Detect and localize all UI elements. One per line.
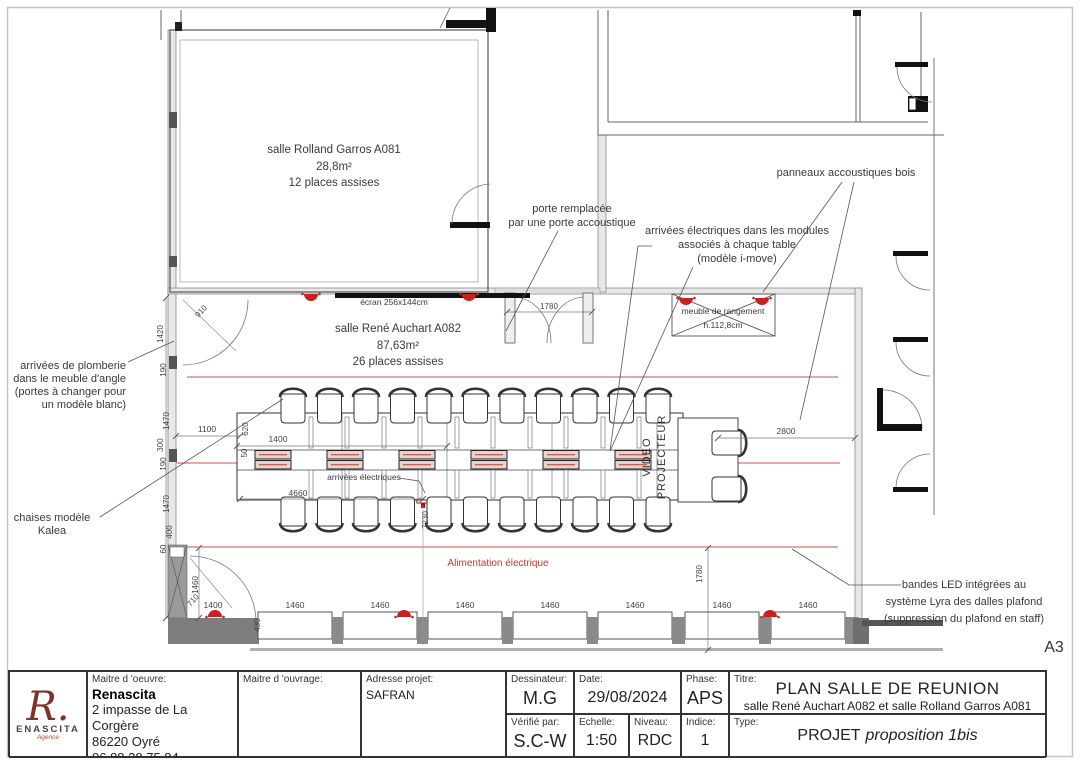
wall-bay [598,612,672,639]
ann-meuble-2: h.112,8cm [703,320,742,330]
dim-4660: 4660 [289,488,308,498]
corridor-door-5 [893,454,930,492]
verifie-cell: Vérifié par: S.C-W [506,714,574,758]
marker-dot [301,293,304,296]
table-leg [528,470,532,498]
room2-seats: 26 places assises [353,356,444,368]
indice-cell: Indice: 1 [681,714,729,758]
dim-430: 430 [253,618,262,632]
wall-bay [428,612,502,639]
ann-panneaux: panneaux accoustiques bois [777,167,916,179]
logo: R. ENASCITA Agence [9,671,87,758]
logo-subtitle: Agence [37,734,59,741]
ann-alim: Alimentation électrique [447,558,549,569]
door-sensor-marker [462,294,476,301]
table-leg [418,470,422,498]
chair [463,497,489,531]
adresse-projet-label: Adresse projet: [366,674,501,685]
wall-pillar [502,617,513,644]
sheet-border [8,8,1073,757]
chair-seat [500,497,524,526]
wall-pillar [672,617,685,644]
wall-hatch [169,449,177,462]
type-label: Type: [734,717,758,728]
chair [645,497,671,531]
room1-top-door [440,8,496,32]
dim-1780-vert: 1780 [695,565,704,583]
drawing-sheet: 910 1420 190 1470 300 190 1470 400 60 14… [0,0,1080,764]
ann-plomberie-3: (portes à changer pour [15,386,127,398]
dessinateur-value: M.G [511,685,569,711]
wall-bay [258,612,332,639]
adresse-projet-cell: Adresse projet: SAFRAN [361,671,506,758]
dim-bottom-1460-1: 1460 [286,600,305,610]
dim-left-60: 60 [159,544,168,553]
room-labels: salle Rolland Garros A081 28,8m² 12 plac… [267,144,461,368]
door-sensor-marker [763,610,777,617]
chair-seat [610,497,634,526]
chair [463,389,489,423]
chair-seat [354,394,378,423]
wall-bay [685,612,759,639]
chair [572,389,598,423]
ann-meuble-1: meuble de rangement [682,306,765,316]
dim-1400-table: 1400 [269,434,288,444]
marker-dot [769,297,772,300]
table-leg [309,470,313,498]
dim-bottom-1460-3: 1460 [456,600,475,610]
table-leg [309,417,313,448]
dim-left-1470b: 1470 [162,495,171,513]
niveau-value: RDC [634,728,676,754]
chair-seat [318,497,342,526]
dim-left-400: 400 [165,525,174,539]
door-sensor-marker [304,294,318,301]
door-sensor-marker [679,298,693,305]
ann-plomberie-4: un modèle blanc) [42,399,126,411]
marker-dot [394,616,397,619]
sheet-format: A3 [1044,639,1064,656]
echelle-label: Echelle: [579,717,624,728]
chair-seat [464,394,488,423]
ann-modules-3: (modèle i-move) [697,253,776,265]
ann-plomberie-1: arrivées de plomberie [20,360,126,372]
dessinateur-label: Dessinateur: [511,674,569,685]
table-leg [491,470,495,498]
dessinateur-cell: Dessinateur: M.G [506,671,574,714]
wall-bay [513,612,587,639]
chair-seat [427,497,451,526]
ann-led-3: (suppression du plafond en staff) [884,613,1044,625]
marker-dot [693,297,696,300]
phase-cell: Phase: APS [681,671,729,714]
type-value-main: PROJET [797,727,860,745]
room1-seats: 12 places assises [289,177,380,189]
table-leg [382,417,386,448]
chair-seat [354,497,378,526]
maitre-oeuvre-name: Renascita [92,687,233,702]
table-leg [564,470,568,498]
type-cell: Type: PROJET proposition 1bis [729,714,1046,758]
indice-label: Indice: [686,717,724,728]
marker-dot [459,293,462,296]
dim-left-190b: 190 [159,457,168,471]
ann-led-2: système Lyra des dalles plafond [886,596,1043,608]
dim-1100: 1100 [198,424,217,434]
dim-bottom-1400: 1400 [204,600,223,610]
titre-label: Titre: [734,674,756,685]
dim-left-910: 910 [193,303,209,319]
ann-porte-2: par une porte accoustique [508,217,635,229]
ann-ecran: écran 256x144cm [360,297,428,307]
dim-left-1470a: 1470 [162,412,171,430]
phase-label: Phase: [686,674,724,685]
verifie-label: Vérifié par: [511,717,569,728]
drawing-title: PLAN SALLE DE REUNION [775,679,999,699]
chair [712,476,746,502]
wall-pillar [417,617,428,644]
room1-area: 28,8m² [316,161,352,173]
table-leg [601,470,605,498]
table-leg [455,470,459,498]
maitre-ouvrage-label: Maitre d 'ouvrage: [243,674,356,685]
ann-chaises-2: Kalea [38,525,67,537]
niveau-cell: Niveau: RDC [629,714,681,758]
chair-seat [281,497,305,526]
chair [499,389,525,423]
wall-pillar [587,617,598,644]
dim-bottom-1460-5: 1460 [626,600,645,610]
dim-bottom-1460-2: 1460 [371,600,390,610]
chair [536,389,562,423]
chair [572,497,598,531]
table-leg [491,417,495,448]
chair-seat [537,394,561,423]
maitre-oeuvre-label: Maitre d 'oeuvre: [92,674,233,685]
chair [499,497,525,531]
ann-plomberie-2: dans le meuble d'angle [13,373,126,385]
wall-bay [771,612,845,639]
logo-letter: R. [27,689,70,725]
corridor-door-4 [877,388,922,431]
adresse-projet-value: SAFRAN [366,688,501,702]
dim-50: 50 [240,448,249,457]
wall-hatch [169,356,177,369]
table-leg [601,417,605,448]
chair [317,389,343,423]
door-sensor-marker [208,610,222,617]
chair-seat [427,394,451,423]
dim-bottom-1460-6: 1460 [713,600,732,610]
maitre-oeuvre-cell: Maitre d 'oeuvre: Renascita 2 impasse de… [87,671,238,758]
chair [353,497,379,531]
chair-seat [712,477,741,501]
floor-plan-canvas: 910 1420 190 1470 300 190 1470 400 60 14… [0,0,1080,764]
marker-dot [476,293,479,296]
corridor-door-3 [893,337,930,376]
ann-chaises-1: chaises modèle [14,512,90,524]
verifie-value: S.C-W [511,728,569,754]
chair [536,497,562,531]
room1-side-door [450,184,490,228]
chair [317,497,343,531]
chair-seat [500,394,524,423]
wall-pillar [332,617,343,644]
chair-seat [391,497,415,526]
table-leg [528,417,532,448]
chair [712,430,746,456]
dim-2800: 2800 [777,426,796,436]
ann-video-1: VIDEO [641,437,653,476]
dim-620: 620 [241,422,250,436]
ann-modules-1: arrivées électriques dans les modules [645,225,830,237]
indice-value: 1 [686,728,724,754]
maitre-ouvrage-cell: Maitre d 'ouvrage: [238,671,361,758]
dim-bottom-1460-7: 1460 [799,600,818,610]
dim-bottom-1460-4: 1460 [541,600,560,610]
table-leg [455,417,459,448]
marker-dot [760,616,763,619]
chair-seat [537,497,561,526]
marker-dot [752,297,755,300]
dim-left-300: 300 [156,438,165,452]
maitre-oeuvre-address2: 86220 Oyré [92,734,233,750]
date-value: 29/08/2024 [579,685,676,711]
chair [353,389,379,423]
marker-dot [222,616,225,619]
chair [390,497,416,531]
ann-arrivees: arrivées électriques [327,472,401,482]
ann-modules-2: associés à chaque table [678,239,796,251]
chair [609,497,635,531]
type-value-variant: proposition 1bis [866,727,978,745]
chair-seat [573,497,597,526]
wall-pillar [759,617,771,644]
date-cell: Date: 29/08/2024 [574,671,681,714]
echelle-value: 1:50 [579,728,624,754]
ann-led-1: bandes LED intégrées au [902,579,1026,591]
corner-cabinet [168,545,187,618]
chair-seat [318,394,342,423]
dim-7230: 7230 [421,511,430,529]
table-leg [345,417,349,448]
dim-left-1420: 1420 [156,325,165,343]
drawing-subtitle: salle René Auchart A082 et salle Rolland… [744,699,1032,713]
ann-porte-1: porte remplacée [532,203,612,215]
marker-dot [205,616,208,619]
bottom-wall [168,612,943,651]
top-right-room [598,10,944,135]
chair-seat [281,394,305,423]
maitre-oeuvre-address1: 2 impasse de La Corgère [92,702,233,734]
table-leg [418,417,422,448]
marker-dot [411,616,414,619]
phase-value: APS [686,685,724,711]
chair-seat [573,394,597,423]
chair [280,497,306,531]
date-label: Date: [579,674,676,685]
chair-seat [464,497,488,526]
table-leg [564,417,568,448]
corridor-door-2 [893,251,930,290]
niveau-label: Niveau: [634,717,676,728]
right-wall [855,288,862,620]
chair-seat [610,394,634,423]
marker-dot [777,616,780,619]
chair [390,389,416,423]
chair [280,389,306,423]
room2-name: salle René Auchart A082 [335,323,461,335]
maitre-oeuvre-phone: 06 88 28 75 84 [92,750,233,758]
logo-name: ENASCITA [16,725,80,734]
chair-seat [391,394,415,423]
chair-seat [646,497,670,526]
room2-area: 87,63m² [377,340,419,352]
door-sensor-marker [397,610,411,617]
room1-name: salle Rolland Garros A081 [267,144,401,156]
marker-dot [318,293,321,296]
door-sensor-marker [755,298,769,305]
corridor [877,58,934,515]
titre-cell: Titre: PLAN SALLE DE REUNION salle René … [729,671,1046,714]
dim-door-1780: 1780 [540,302,558,311]
dim-left-1460: 1460 [191,576,200,594]
chair [426,389,452,423]
chair-seat [712,431,741,455]
title-block: R. ENASCITA Agence Maitre d 'oeuvre: Ren… [8,670,1047,757]
room2-left-door [183,300,248,365]
dim-left-190a: 190 [159,363,168,377]
ann-video-2: PROJECTEUR [656,415,668,500]
echelle-cell: Echelle: 1:50 [574,714,629,758]
